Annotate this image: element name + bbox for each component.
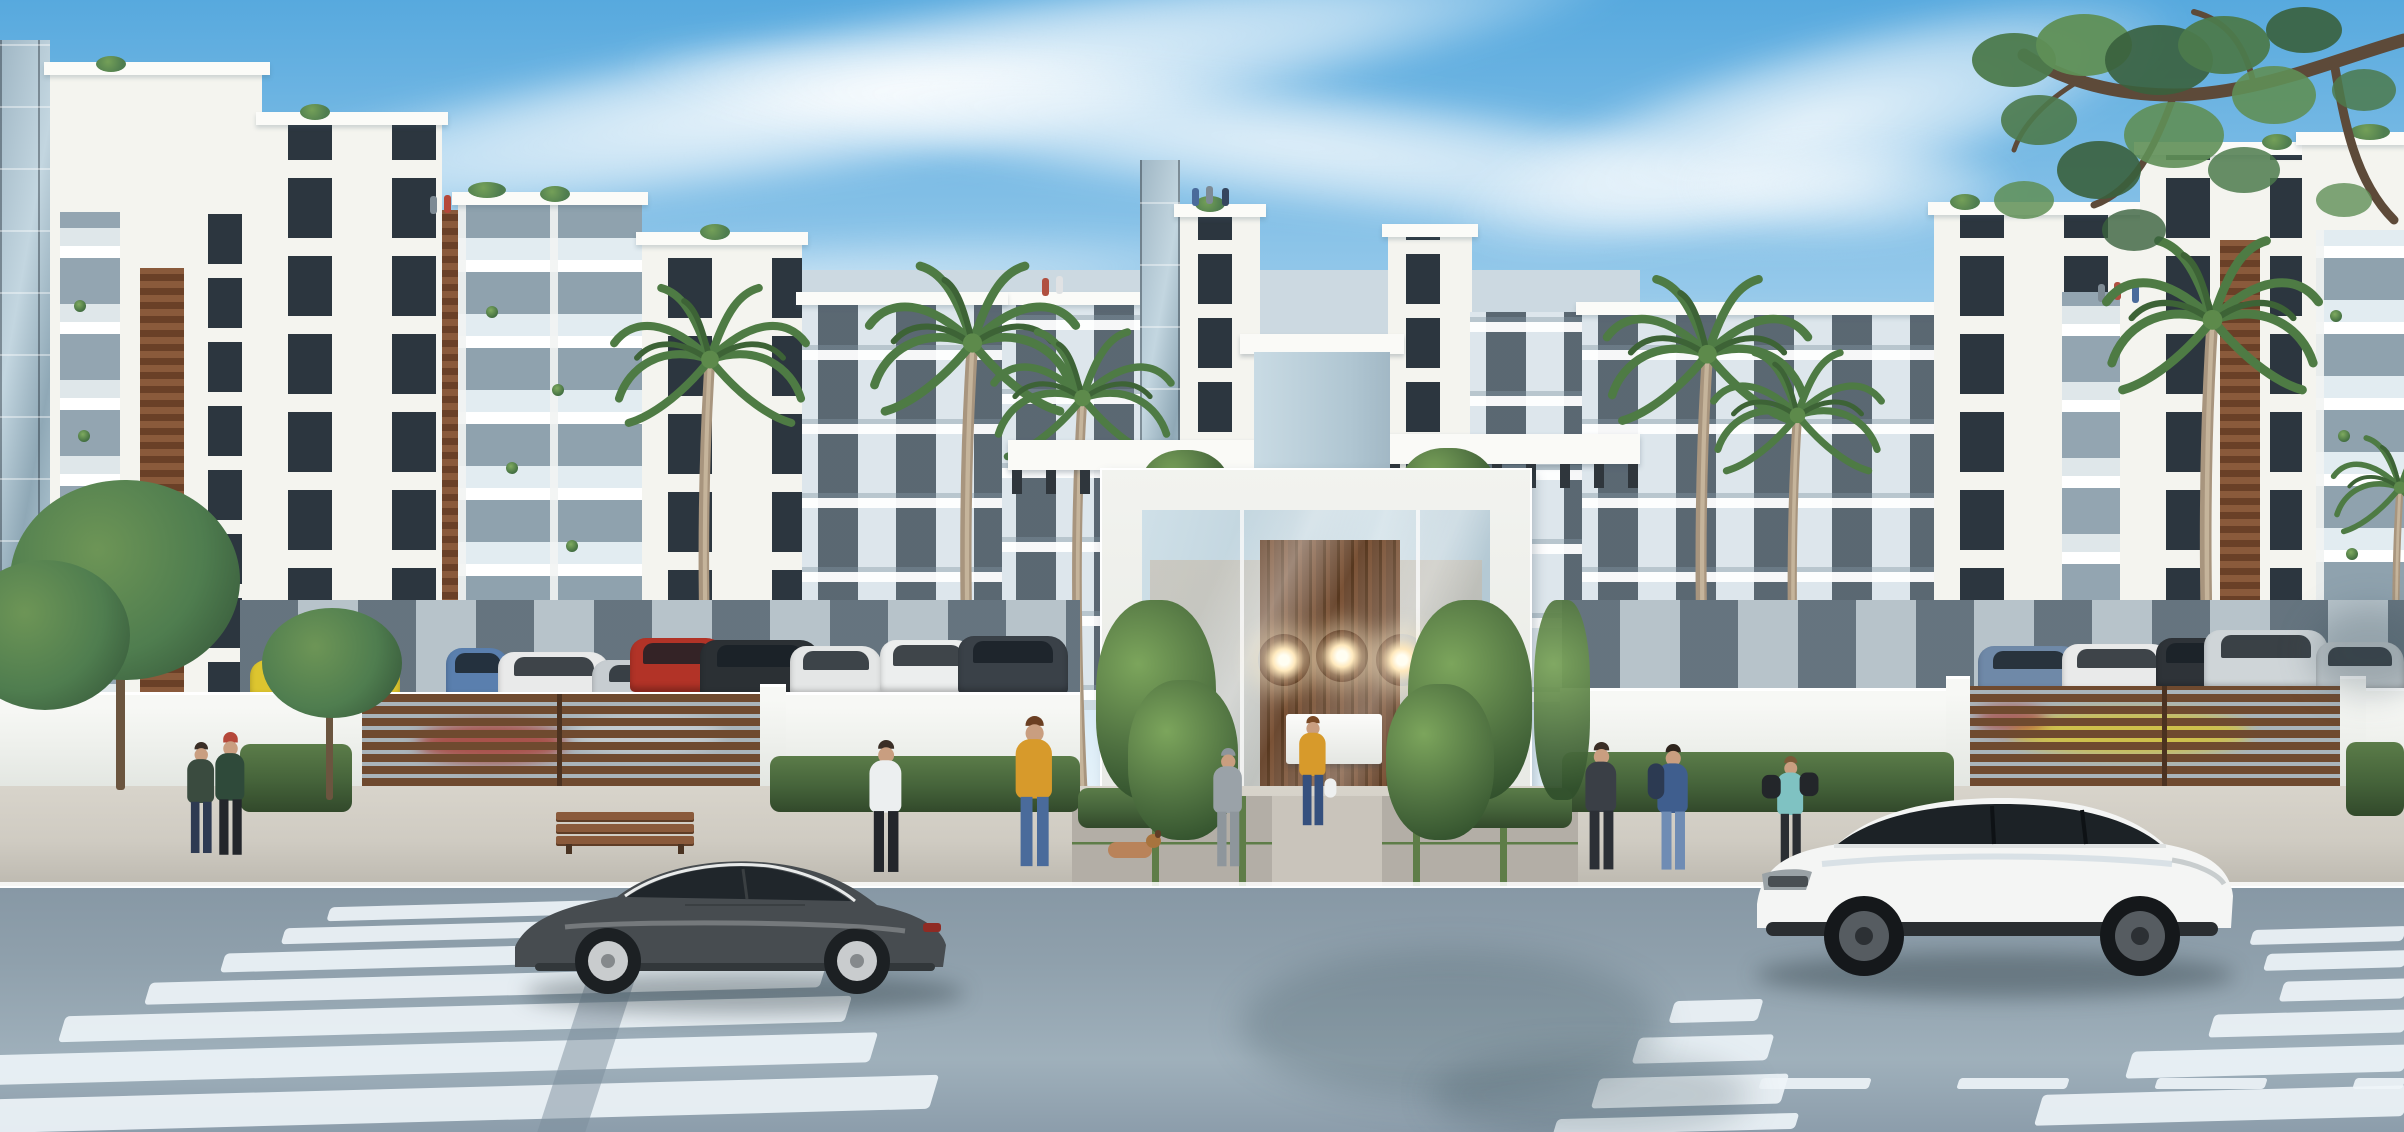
hedge <box>240 744 352 812</box>
rooftop-plant <box>700 224 730 240</box>
parked-car-white-hatch <box>790 646 882 696</box>
dog <box>1108 834 1162 860</box>
dark-coupe-car <box>505 835 955 1005</box>
rooftop-person <box>430 196 437 214</box>
street-scene <box>0 0 2404 1132</box>
lane-dash <box>2154 1078 2268 1089</box>
crosswalk-stripe <box>1668 999 1763 1023</box>
bamboo-plant <box>1534 600 1590 800</box>
entrance-bush-right-2 <box>1386 684 1494 840</box>
rooftop-person <box>1192 188 1199 206</box>
parked-car-dark-van <box>958 636 1068 694</box>
rooftop-person <box>1222 188 1229 206</box>
person-gray-hoodie <box>1212 748 1243 866</box>
person-blue-sweater <box>1656 744 1689 870</box>
entrance-column-cap <box>1240 334 1404 354</box>
balcony-plant <box>486 306 498 318</box>
rooftop-plant <box>300 104 330 120</box>
rooftop-plant <box>468 182 506 198</box>
rooftop-plant <box>96 56 126 72</box>
rooftop-person <box>444 195 451 213</box>
small-tree-canopy <box>262 608 402 718</box>
person-couple-b <box>214 732 246 855</box>
rooftop-plant <box>540 186 570 202</box>
balcony-plant <box>506 462 518 474</box>
person-mustard-cardigan <box>1298 716 1327 825</box>
parked-car-silver-suv <box>2204 630 2328 690</box>
balcony-plant <box>552 384 564 396</box>
lane-dash <box>1758 1078 1872 1089</box>
back-cornice <box>1382 224 1478 237</box>
crosswalk-stripe <box>2279 978 2404 1001</box>
jacket-over-shoulder <box>1648 763 1665 799</box>
white-bag <box>1324 778 1336 797</box>
lane-dash <box>2352 1078 2404 1089</box>
person-dark-right <box>1584 742 1618 869</box>
person-couple-a <box>186 742 215 853</box>
person-mustard-jeans <box>1014 716 1054 866</box>
overhanging-tree-branch <box>1874 0 2404 370</box>
hedge <box>2346 742 2404 816</box>
slatted-gate-left <box>362 694 760 798</box>
rooftop-person <box>1206 186 1213 204</box>
left-cornice-1 <box>44 62 270 75</box>
gate-seam <box>557 694 562 798</box>
forecourt-walkway <box>1272 796 1382 886</box>
left-cornice-2 <box>256 112 448 125</box>
white-suv-car <box>1742 756 2242 991</box>
balcony-plant <box>566 540 578 552</box>
lane-dash <box>1956 1078 2070 1089</box>
leaf-shadow <box>1430 1050 1750 1132</box>
chandelier <box>1258 634 1310 686</box>
chandelier <box>1316 630 1368 682</box>
balcony-plant <box>74 300 86 312</box>
balcony-plant <box>78 430 90 442</box>
